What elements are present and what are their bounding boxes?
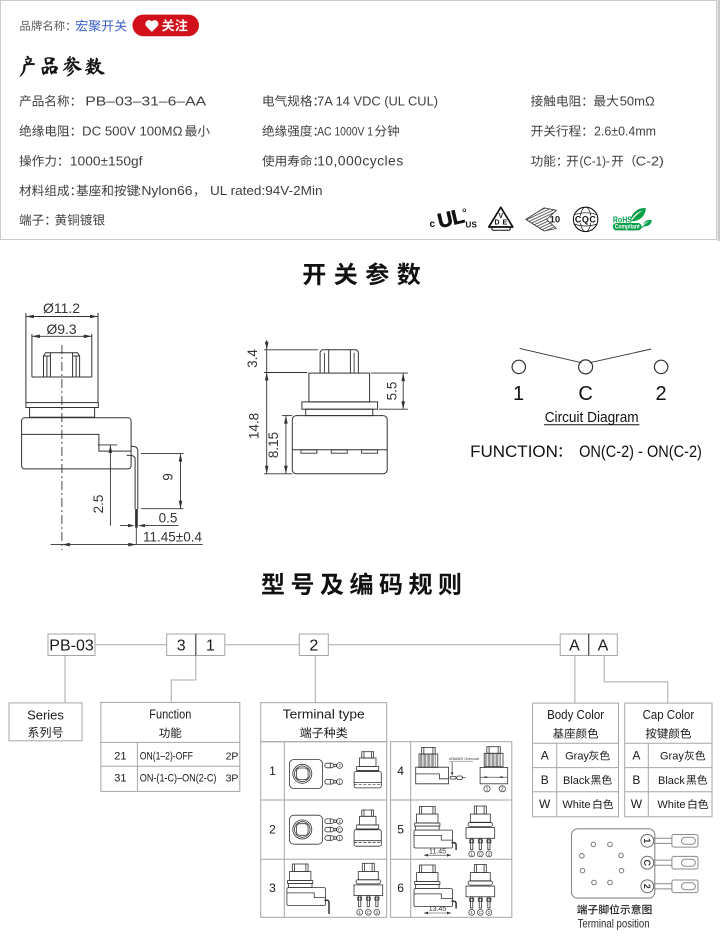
svg-text:0.5: 0.5 [159, 511, 178, 526]
svg-text:(C-1)-: (C-1)- [580, 154, 610, 169]
svg-text:UL rated:94V-2Min: UL rated:94V-2Min [210, 183, 323, 198]
svg-text:Gray: Gray [565, 751, 589, 763]
svg-text:2: 2 [338, 819, 341, 824]
svg-text:4: 4 [397, 764, 404, 778]
svg-text:A: A [569, 638, 580, 655]
svg-text:FUNCTION: FUNCTION [470, 442, 558, 461]
svg-text:2: 2 [376, 910, 379, 915]
svg-text:1: 1 [486, 787, 489, 793]
svg-text:W: W [539, 797, 551, 811]
svg-text:White: White [562, 799, 590, 811]
svg-text:2: 2 [501, 787, 504, 793]
svg-text:2: 2 [269, 823, 276, 837]
svg-text:1: 1 [338, 836, 341, 841]
svg-text:7A 14 VDC (UL CUL): 7A 14 VDC (UL CUL) [317, 94, 438, 109]
svg-text:D: D [494, 220, 499, 227]
svg-text:Terminal type: Terminal type [283, 707, 365, 722]
svg-text:Cap Color: Cap Color [643, 707, 695, 722]
svg-text:A: A [632, 749, 640, 763]
svg-text:50mΩ: 50mΩ [620, 94, 655, 109]
svg-text:C: C [578, 383, 592, 405]
svg-text:2: 2 [642, 884, 652, 889]
svg-text:2: 2 [656, 383, 667, 405]
svg-text:13.45: 13.45 [429, 906, 447, 913]
svg-text:ON-(1-C)–ON(2-C): ON-(1-C)–ON(2-C) [140, 773, 217, 785]
svg-text:2: 2 [338, 763, 341, 768]
svg-text:AC 1000V 1: AC 1000V 1 [317, 125, 373, 139]
svg-text:2P: 2P [226, 751, 239, 763]
svg-text:US: US [466, 220, 478, 229]
svg-text:Black: Black [563, 775, 590, 787]
svg-text:CQC: CQC [575, 215, 597, 225]
svg-text:1: 1 [642, 838, 652, 843]
svg-text:21: 21 [114, 751, 126, 763]
svg-text:1: 1 [269, 764, 276, 778]
svg-text:c: c [430, 219, 436, 230]
svg-text:3P: 3P [226, 773, 239, 785]
svg-text:9: 9 [161, 473, 176, 481]
svg-text:10,000cycles: 10,000cycles [317, 153, 404, 169]
svg-text:C: C [642, 859, 652, 866]
svg-text:2: 2 [488, 852, 491, 857]
svg-text:E: E [502, 220, 507, 227]
svg-text:A: A [541, 749, 549, 763]
svg-text:2: 2 [309, 638, 318, 655]
svg-text:White: White [657, 799, 685, 811]
svg-text:11.45: 11.45 [429, 848, 446, 855]
svg-text:Body Color: Body Color [547, 707, 605, 722]
svg-text:DC 500V 100MΩ: DC 500V 100MΩ [82, 124, 183, 139]
svg-text:Function: Function [149, 708, 191, 722]
svg-text:1000±150gf: 1000±150gf [70, 154, 143, 169]
svg-text:1: 1 [206, 638, 215, 655]
svg-text:PB–03–31–6–AA: PB–03–31–6–AA [85, 94, 206, 109]
svg-text:3: 3 [177, 638, 186, 655]
svg-text:14.8: 14.8 [246, 413, 261, 439]
svg-text:10: 10 [550, 214, 561, 225]
svg-text:C-2): C-2) [636, 154, 664, 169]
svg-text:3: 3 [269, 881, 276, 895]
svg-text:Ø9.3: Ø9.3 [46, 321, 77, 337]
svg-text:2.5: 2.5 [91, 495, 106, 514]
svg-text:A: A [598, 638, 609, 655]
svg-text:2.6±0.4mm: 2.6±0.4mm [594, 124, 656, 139]
svg-text:B: B [632, 773, 640, 787]
svg-text:5: 5 [397, 823, 404, 837]
svg-text:Gray: Gray [660, 751, 684, 763]
svg-text:1: 1 [358, 910, 361, 915]
svg-text:ON(C-2) - ON(C-2): ON(C-2) - ON(C-2) [579, 442, 702, 461]
svg-text:Black: Black [658, 775, 685, 787]
svg-text:B: B [541, 773, 549, 787]
svg-text:5.5: 5.5 [385, 382, 400, 401]
svg-text:Terminal position: Terminal position [578, 916, 650, 930]
svg-text:W: W [631, 797, 643, 811]
svg-text:1: 1 [470, 852, 473, 857]
svg-text:3.4: 3.4 [245, 349, 260, 368]
svg-text:1: 1 [338, 779, 341, 784]
svg-text:PB-03: PB-03 [49, 638, 94, 655]
svg-text:11.45±0.4: 11.45±0.4 [143, 530, 202, 545]
svg-text:31: 31 [114, 773, 126, 785]
svg-text:6: 6 [397, 881, 404, 895]
svg-text:Circuit Diagram: Circuit Diagram [545, 410, 639, 426]
svg-text:2: 2 [488, 910, 491, 915]
svg-text:ON(1–2)-OFF: ON(1–2)-OFF [140, 751, 193, 763]
svg-text:#26AWG Overcoat: #26AWG Overcoat [449, 757, 479, 761]
svg-text:Series: Series [27, 708, 64, 723]
svg-text:Ø11.2: Ø11.2 [43, 300, 80, 316]
svg-text::Nylon66: :Nylon66 [138, 183, 193, 198]
svg-text:1: 1 [513, 383, 524, 405]
svg-text:8.15: 8.15 [266, 432, 281, 458]
svg-text:1: 1 [470, 910, 473, 915]
